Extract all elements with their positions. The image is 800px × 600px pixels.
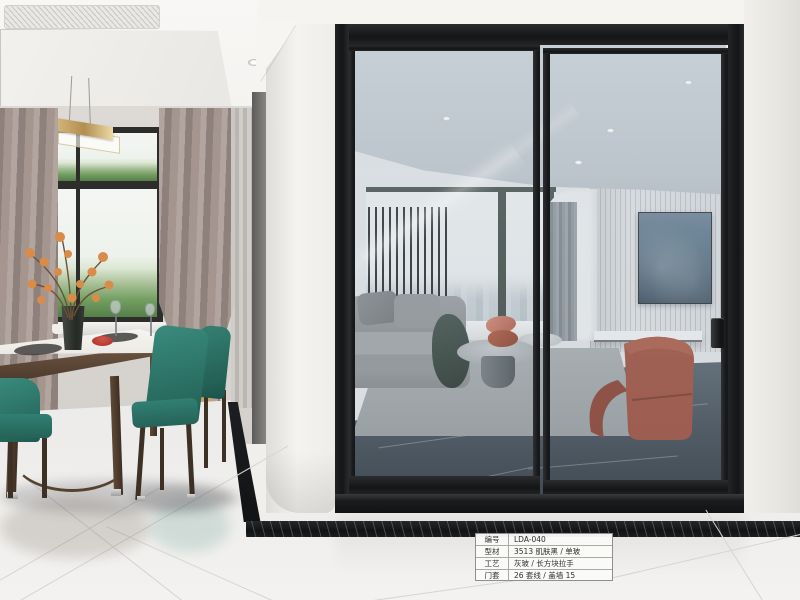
showroom-photo: 编号 LDA-040 型材 3513 肌肤黑 / 单玻 工艺 灰玻 / 长方块拉… [0, 0, 800, 600]
door-track [333, 494, 745, 513]
right-panel-top-rail [543, 48, 728, 54]
right-panel-meeting-stile[interactable] [543, 48, 550, 495]
door-frame-head [333, 24, 745, 45]
chair-leg [8, 436, 13, 498]
chair-leg [160, 428, 164, 490]
spec-label: 型材 [476, 546, 509, 557]
right-panel-stile[interactable] [721, 48, 728, 495]
dining-chair-seat [0, 414, 52, 438]
left-panel-meeting-stile[interactable] [533, 45, 540, 495]
left-panel-bottom-rail [349, 476, 540, 495]
wall-base-shading [266, 452, 335, 513]
table-foot-chrome [111, 489, 121, 496]
white-cup [52, 324, 64, 334]
spec-label: 编号 [476, 534, 509, 545]
chair-leg [42, 438, 47, 498]
ac-vent-grille [4, 5, 160, 29]
door-frame-left-jamb [333, 24, 349, 513]
left-panel-top-rail [349, 45, 540, 51]
chair-foot-chrome [187, 494, 195, 499]
spec-row: 型材 3513 肌肤黑 / 单玻 [476, 546, 612, 558]
spec-row: 工艺 灰玻 / 长方块拉手 [476, 558, 612, 570]
wall-reveal-shadow [252, 92, 267, 444]
spec-label: 门套 [476, 570, 509, 581]
door-jamb-wall [266, 24, 335, 513]
product-spec-table: 编号 LDA-040 型材 3513 肌肤黑 / 单玻 工艺 灰玻 / 长方块拉… [475, 533, 613, 581]
spec-value: 灰玻 / 长方块拉手 [509, 558, 612, 569]
ceiling-above-door [258, 0, 748, 26]
spec-label: 工艺 [476, 558, 509, 569]
spec-row: 编号 LDA-040 [476, 534, 612, 546]
chair-foot-chrome [137, 496, 145, 501]
spec-value: 3513 肌肤黑 / 单玻 [509, 546, 612, 557]
left-panel-stile[interactable] [349, 45, 355, 495]
chair-leg [204, 394, 208, 468]
dining-chair-seat [131, 398, 199, 429]
spec-value: 26 套线 / 盖墙 15 [509, 570, 612, 581]
spec-value: LDA-040 [509, 534, 612, 545]
chair-shadow [130, 486, 240, 512]
wine-glass-bowl [145, 303, 155, 316]
red-bowl [92, 336, 113, 346]
spec-row: 门套 26 套线 / 盖墙 15 [476, 570, 612, 581]
rectangular-door-handle[interactable] [711, 318, 724, 348]
right-wall [744, 0, 800, 530]
berry-branches [8, 228, 123, 320]
door-frame-right-jamb [728, 24, 745, 513]
chair-leg [222, 390, 226, 462]
